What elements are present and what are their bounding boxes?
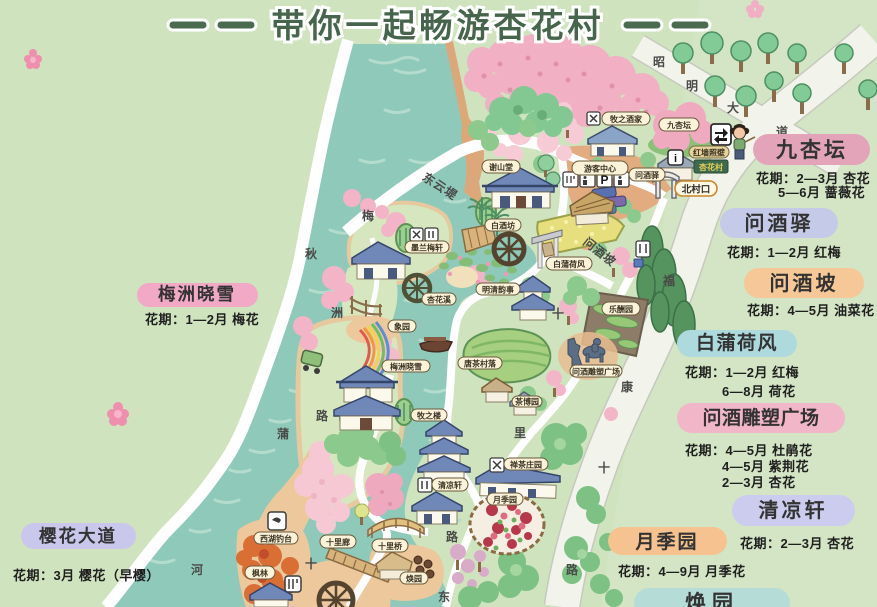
svg-text:十: 十	[305, 556, 317, 571]
svg-text:唐茶村落: 唐茶村落	[464, 359, 497, 369]
svg-text:6—8月 荷花: 6—8月 荷花	[722, 384, 796, 399]
svg-text:梅洲晓雪: 梅洲晓雪	[158, 284, 236, 304]
svg-text:问酒驿: 问酒驿	[745, 212, 814, 235]
svg-text:花期：1—2月 梅花: 花期：1—2月 梅花	[145, 312, 259, 327]
svg-text:河: 河	[190, 562, 203, 577]
svg-text:焕园: 焕园	[685, 591, 739, 607]
svg-text:花期：2—3月 杏花: 花期：2—3月 杏花	[740, 536, 854, 551]
svg-text:秋: 秋	[305, 246, 318, 261]
svg-text:梅洲晓雪: 梅洲晓雪	[390, 362, 422, 372]
svg-text:清凉轩: 清凉轩	[759, 498, 828, 522]
svg-text:十: 十	[598, 460, 610, 475]
svg-text:花期：3月 樱花（早樱）: 花期：3月 樱花（早樱）	[13, 568, 160, 583]
svg-text:茶博园: 茶博园	[514, 397, 539, 407]
svg-text:白蒲荷风: 白蒲荷风	[553, 259, 585, 269]
svg-text:红墙照壁: 红墙照壁	[693, 148, 725, 158]
svg-text:花期：2—3月 杏花: 花期：2—3月 杏花	[756, 171, 870, 186]
svg-text:福: 福	[662, 273, 675, 288]
svg-text:九杏坛: 九杏坛	[775, 138, 848, 162]
svg-text:西湖钓台: 西湖钓台	[260, 534, 292, 544]
svg-text:带你一起畅游杏花村: 带你一起畅游杏花村	[272, 7, 605, 44]
svg-text:樱花大道: 樱花大道	[39, 526, 117, 546]
svg-text:象园: 象园	[394, 322, 410, 332]
svg-text:杏花村: 杏花村	[698, 162, 723, 172]
svg-text:明: 明	[686, 79, 698, 93]
svg-text:乐酬园: 乐酬园	[609, 304, 633, 314]
svg-text:北村口: 北村口	[682, 184, 711, 196]
svg-text:杏花溪: 杏花溪	[426, 295, 452, 305]
svg-text:焕园: 焕园	[406, 574, 422, 584]
svg-text:牧之酒家: 牧之酒家	[610, 114, 643, 124]
svg-text:白蒲荷风: 白蒲荷风	[696, 331, 778, 354]
svg-text:明清韵事: 明清韵事	[482, 285, 514, 295]
svg-text:东: 东	[438, 589, 450, 604]
svg-text:游客中心: 游客中心	[584, 164, 616, 174]
svg-text:月季园: 月季园	[492, 495, 517, 505]
svg-text:路: 路	[566, 562, 579, 577]
svg-text:白酒坊: 白酒坊	[491, 221, 515, 231]
svg-text:墨兰梅轩: 墨兰梅轩	[411, 243, 443, 253]
svg-text:康: 康	[621, 379, 634, 394]
svg-text:梅: 梅	[362, 208, 374, 223]
svg-text:花期：4—5月 油菜花: 花期：4—5月 油菜花	[747, 303, 875, 318]
svg-text:问酒驿: 问酒驿	[635, 170, 660, 180]
svg-text:十里廊: 十里廊	[326, 537, 350, 547]
svg-text:路: 路	[446, 529, 459, 544]
svg-text:花期：1—2月 红梅: 花期：1—2月 红梅	[685, 365, 799, 380]
svg-text:九杏坛: 九杏坛	[666, 120, 691, 130]
svg-text:5—6月 蔷薇花: 5—6月 蔷薇花	[778, 185, 865, 200]
svg-text:问酒雕塑广场: 问酒雕塑广场	[702, 406, 819, 429]
svg-text:洲: 洲	[331, 306, 343, 320]
svg-text:十: 十	[552, 306, 564, 321]
svg-text:路: 路	[316, 408, 329, 423]
svg-text:i: i	[674, 153, 677, 165]
svg-text:牧之楼: 牧之楼	[417, 411, 441, 421]
svg-text:花期：4—5月 杜鹃花: 花期：4—5月 杜鹃花	[685, 443, 813, 458]
svg-text:禅茶庄园: 禅茶庄园	[509, 460, 542, 470]
svg-text:问酒坡: 问酒坡	[770, 272, 839, 295]
svg-text:月季园: 月季园	[634, 531, 698, 553]
svg-text:清凉轩: 清凉轩	[438, 480, 462, 490]
svg-text:4—5月 紫荆花: 4—5月 紫荆花	[722, 459, 809, 474]
svg-text:十里桥: 十里桥	[378, 541, 403, 551]
svg-text:枫林: 枫林	[252, 568, 268, 578]
svg-text:谢山堂: 谢山堂	[489, 162, 513, 172]
svg-text:问酒雕塑广场: 问酒雕塑广场	[572, 367, 620, 377]
svg-text:2—3月 杏花: 2—3月 杏花	[722, 475, 796, 490]
svg-text:花期：4—9月 月季花: 花期：4—9月 月季花	[618, 564, 746, 579]
svg-text:昭: 昭	[653, 55, 665, 69]
svg-text:里: 里	[514, 425, 526, 440]
svg-text:花期：1—2月 红梅: 花期：1—2月 红梅	[727, 245, 841, 260]
svg-text:大: 大	[727, 100, 739, 115]
svg-text:蒲: 蒲	[277, 426, 289, 441]
